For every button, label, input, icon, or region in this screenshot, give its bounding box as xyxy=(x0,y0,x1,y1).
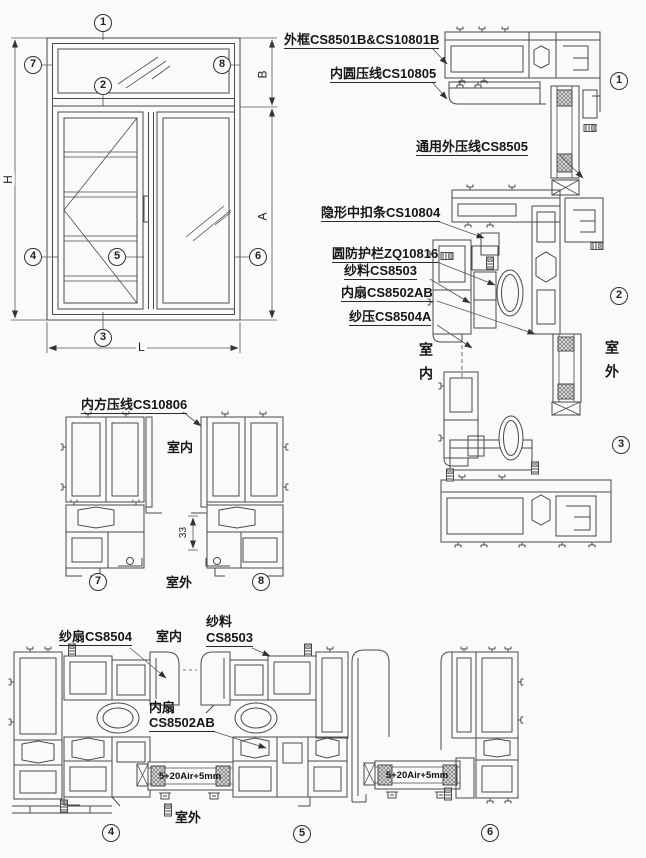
elevation-marker-8: 8 xyxy=(213,56,231,74)
outdoor-label-vertical: 室外 xyxy=(604,340,619,388)
callout-inner-round-bead: 内圆压线CS10805 xyxy=(330,66,436,83)
callout-hidden-mid-clip: 隐形中扣条CS10804 xyxy=(321,205,440,222)
round-guard-bar-oval xyxy=(497,270,523,316)
callout-screen-material: 纱料CS8503 xyxy=(344,263,417,280)
dim-label-sash: A xyxy=(257,210,270,222)
round-guard-bar-oval-2 xyxy=(499,416,523,460)
insulated-glass-unit-vertical-top xyxy=(551,86,579,195)
elevation-marker-5: 5 xyxy=(108,248,126,266)
elevation-drawing xyxy=(11,32,277,353)
bottom-marker-6: 6 xyxy=(481,824,499,842)
technical-drawing-canvas: 1 7 8 2 4 5 6 3 H B A L 外框CS8501B&CS1080… xyxy=(0,0,646,858)
guard-bar-oval-left xyxy=(97,703,139,733)
bottom-marker-5: 5 xyxy=(293,825,311,843)
callout-outer-frame: 外框CS8501B&CS10801B xyxy=(284,32,439,49)
callout-universal-outer-bead: 通用外压线CS8505 xyxy=(416,139,528,156)
glass-spec-label-left: 5+20Air+5mm xyxy=(158,771,222,782)
outdoor-label-bottom: 室外 xyxy=(175,810,201,825)
indoor-label-bottom: 室内 xyxy=(156,629,182,644)
elevation-marker-2: 2 xyxy=(94,77,112,95)
elevation-marker-4: 4 xyxy=(24,248,42,266)
elevation-marker-6: 6 xyxy=(249,248,267,266)
bottom-marker-4: 4 xyxy=(102,824,120,842)
glass-spec-label-right: 5+20Air+5mm xyxy=(385,770,449,781)
dim-label-transom: B xyxy=(257,68,270,80)
section-marker-1: 1 xyxy=(610,72,628,90)
horizontal-section-drawing xyxy=(9,644,524,816)
elevation-marker-3: 3 xyxy=(94,329,112,347)
callout-screen-material-line2: CS8503 xyxy=(206,630,253,647)
callout-screen-material-line1: 纱料 xyxy=(206,614,232,629)
dim-label-width: L xyxy=(136,341,147,354)
callout-screen-bead: 纱压CS8504A xyxy=(349,309,431,326)
callout-inner-sash: 内扇CS8502AB xyxy=(341,285,433,302)
dim-label-33: 33 xyxy=(177,525,190,540)
profile-line-art xyxy=(0,0,646,858)
callout-screen-sash: 纱扇CS8504 xyxy=(59,629,132,646)
section-marker-3: 3 xyxy=(612,436,630,454)
corner-sections-drawing xyxy=(61,412,289,577)
guard-bar-oval-right xyxy=(235,703,277,733)
vertical-section-drawing xyxy=(428,27,612,548)
indoor-label-corner: 室内 xyxy=(167,440,193,455)
corner-marker-8: 8 xyxy=(252,573,270,591)
callout-inner-sash-line1: 内扇 xyxy=(149,700,175,715)
section-marker-2: 2 xyxy=(610,287,628,305)
insulated-glass-unit-vertical-bottom xyxy=(552,334,581,415)
indoor-label-vertical: 室内 xyxy=(418,342,433,390)
dim-label-height: H xyxy=(2,173,15,186)
corner-marker-7: 7 xyxy=(89,573,107,591)
elevation-marker-7: 7 xyxy=(24,56,42,74)
callout-round-guard-bar: 圆防护栏ZQ10816 xyxy=(332,246,438,263)
callout-inner-square-bead: 内方压线CS10806 xyxy=(81,397,187,414)
elevation-marker-1: 1 xyxy=(94,14,112,32)
callout-inner-sash-line2: CS8502AB xyxy=(149,715,215,732)
outdoor-label-corner: 室外 xyxy=(166,575,192,590)
